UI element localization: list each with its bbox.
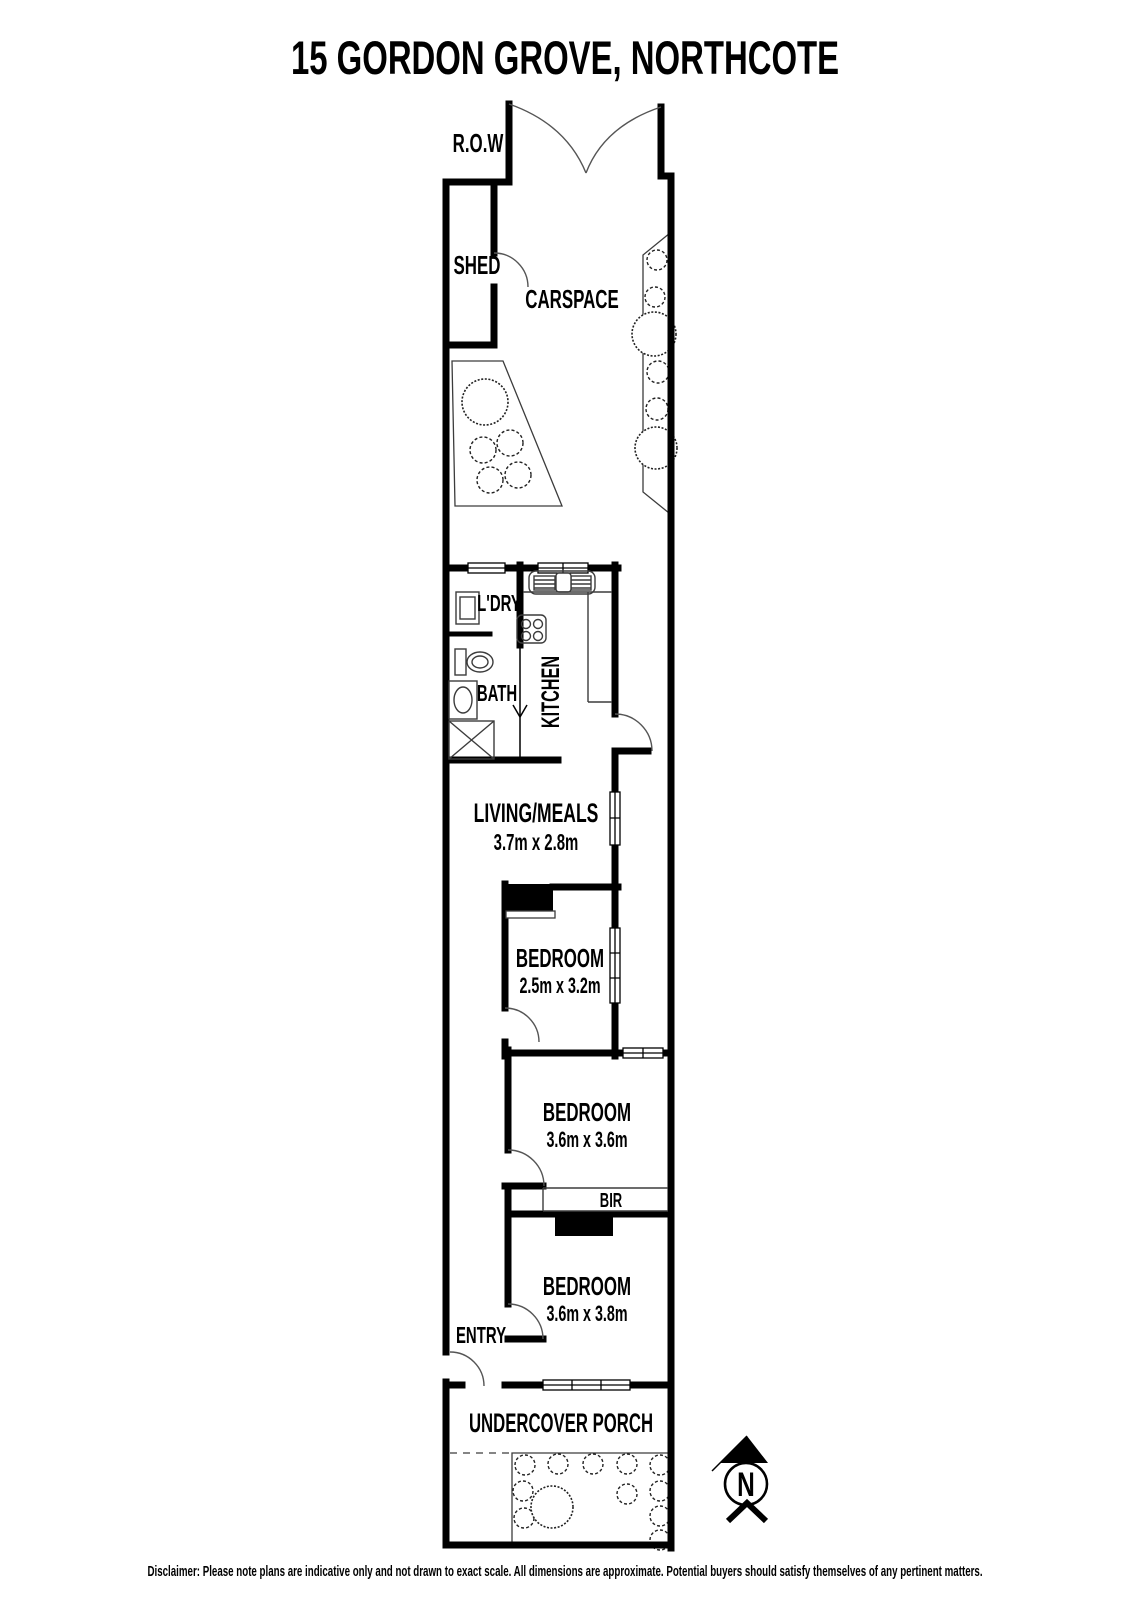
- shrub-symbol: [470, 437, 496, 463]
- shrub-symbol: [497, 430, 523, 456]
- bed2-left-wall: [505, 1050, 543, 1217]
- shower: [449, 721, 494, 759]
- label-porch: UNDERCOVER PORCH: [469, 1408, 653, 1438]
- label-bir: BIR: [600, 1189, 622, 1212]
- window-living: [610, 792, 620, 845]
- shrub-symbol: [583, 1454, 603, 1474]
- north-arrow: N: [712, 1436, 768, 1521]
- label-bedroom3-dims: 3.6m x 3.8m: [546, 1301, 627, 1326]
- window-bedroom2: [623, 1048, 663, 1058]
- label-shed: SHED: [454, 250, 501, 280]
- shrub-symbol: [617, 1484, 637, 1504]
- label-bedroom1-dims: 2.5m x 3.2m: [519, 973, 600, 998]
- floor-plan-page: N 15 GORDON GROVE, NORTHCOTE R.O.W SHED …: [0, 0, 1131, 1600]
- washing-machine: [456, 592, 479, 624]
- label-bedroom3: BEDROOM: [543, 1271, 631, 1301]
- label-bedroom2-dims: 3.6m x 3.6m: [546, 1127, 627, 1152]
- double-gate-arcs: [509, 104, 661, 173]
- label-entry: ENTRY: [456, 1323, 506, 1349]
- door-bedroom1: [505, 1008, 539, 1042]
- door-bedroom2: [508, 1150, 544, 1186]
- shrub-symbol: [647, 361, 669, 383]
- page-title: 15 GORDON GROVE, NORTHCOTE: [291, 31, 839, 84]
- door-kitchen-exterior: [615, 714, 652, 751]
- label-living: LIVING/MEALS: [474, 797, 599, 828]
- tree-symbol: [462, 379, 508, 425]
- label-carspace: CARSPACE: [525, 284, 618, 314]
- shrub-symbol: [477, 467, 503, 493]
- shrub-symbol: [650, 1506, 670, 1526]
- label-living-dims: 3.7m x 2.8m: [494, 830, 579, 856]
- label-row: R.O.W: [453, 128, 504, 158]
- disclaimer-text: Disclaimer: Please note plans are indica…: [147, 1563, 982, 1580]
- window-bedroom3: [543, 1380, 630, 1390]
- label-bedroom1: BEDROOM: [516, 943, 604, 973]
- label-bedroom2: BEDROOM: [543, 1097, 631, 1127]
- shrub-symbol: [548, 1454, 568, 1474]
- shrub-symbol: [645, 287, 665, 307]
- fireplace-hearth: [506, 911, 555, 918]
- floor-plan-svg: N 15 GORDON GROVE, NORTHCOTE R.O.W SHED …: [0, 0, 1131, 1600]
- north-arrow-chevron: [728, 1503, 766, 1521]
- shrub-symbol: [513, 1481, 533, 1501]
- shrub-symbol: [505, 462, 531, 488]
- shrub-symbol: [617, 1454, 637, 1474]
- window-bedroom1: [610, 928, 620, 1003]
- label-laundry: L'DRY: [477, 591, 521, 617]
- north-letter: N: [737, 1466, 755, 1504]
- fireplace-living: [505, 884, 553, 911]
- door-bedroom3: [508, 1304, 543, 1339]
- label-kitchen: KITCHEN: [538, 656, 565, 728]
- tree-symbol: [531, 1486, 573, 1528]
- window-rear-1: [468, 563, 505, 573]
- kitchen-sink: [529, 571, 595, 594]
- fireplace-bedroom3: [555, 1217, 613, 1236]
- toilet: [455, 649, 493, 675]
- shrub-symbol: [515, 1455, 535, 1475]
- shrub-symbol: [647, 250, 667, 270]
- door-front-entry: [450, 1352, 484, 1386]
- shrub-symbol: [646, 398, 668, 420]
- label-bath: BATH: [477, 681, 517, 707]
- trees-shrubs: [462, 250, 677, 1550]
- shrub-symbol: [650, 1481, 670, 1501]
- kitchen-bench: [523, 592, 612, 702]
- shrub-symbol: [650, 1455, 670, 1475]
- vanity-basin: [449, 681, 477, 719]
- labels: 15 GORDON GROVE, NORTHCOTE R.O.W SHED CA…: [147, 31, 982, 1579]
